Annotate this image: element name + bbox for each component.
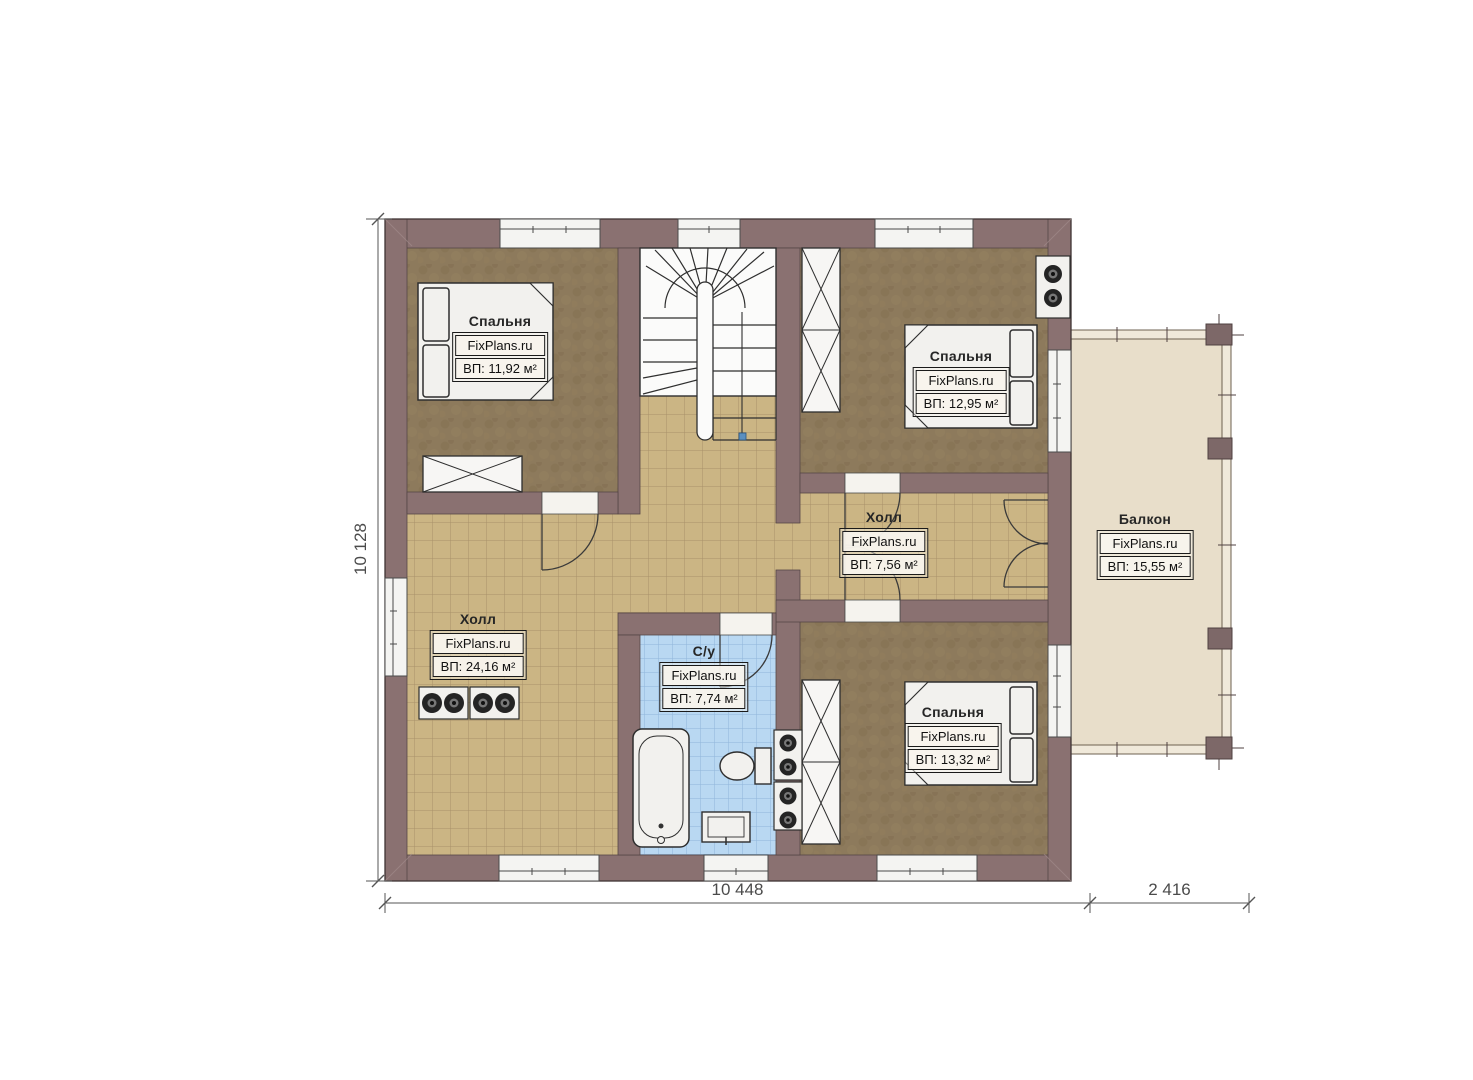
room-name: Спальня [469,313,532,329]
room-label-hall-large: Холл FixPlans.ru ВП: 24,16 м² [430,611,527,680]
pillow [423,288,449,341]
wall-bedroomTL-hall-a [407,492,542,514]
window-bottom-1 [499,855,599,881]
room-area: ВП: 24,16 м² [433,656,524,677]
wall-outer-left [385,219,407,881]
hall-large-floor [407,514,640,855]
room-name: Холл [460,611,496,627]
room-info-box: FixPlans.ru ВП: 12,95 м² [913,367,1010,417]
room-name: Спальня [922,704,985,720]
window-bottom-2 [877,855,977,881]
room-label-bedroom-top-right: Спальня FixPlans.ru ВП: 12,95 м² [913,348,1010,417]
brand-watermark: FixPlans.ru [908,726,999,747]
room-info-box: FixPlans.ru ВП: 11,92 м² [452,332,548,382]
pillow [1010,738,1033,782]
room-area: ВП: 13,32 м² [908,749,999,770]
room-name: Балкон [1119,511,1171,527]
passage-threshold [776,523,800,570]
room-area: ВП: 12,95 м² [916,393,1007,414]
wall-bedroomTR-hall-b [900,473,1048,493]
room-label-bedroom-bottom-right: Спальня FixPlans.ru ВП: 13,32 м² [905,704,1002,773]
window-top-stairs [678,219,740,248]
room-name: Спальня [930,348,993,364]
wall-bedroomTL-stairs [618,248,640,514]
wall-bedroomTR-hall-a [800,473,845,493]
wardrobe-bedroomBR [802,680,840,844]
brand-watermark: FixPlans.ru [916,370,1007,391]
floor-plan-page: Спальня FixPlans.ru ВП: 11,92 м² Спальня… [0,0,1473,1080]
brand-watermark: FixPlans.ru [455,335,545,356]
room-label-hall-small: Холл FixPlans.ru ВП: 7,56 м² [839,509,928,578]
wardrobe-bedroomTL [423,456,522,492]
brand-watermark: FixPlans.ru [433,633,524,654]
stair-divider [697,282,713,440]
wardrobe-bedroomTR [802,248,840,412]
wall-hall-bedroomBR-a [776,600,845,622]
pillow [423,345,449,397]
room-label-balcony: Балкон FixPlans.ru ВП: 15,55 м² [1097,511,1194,580]
vent-bedroomTR-corner [1036,256,1070,318]
pillow [1010,330,1033,377]
room-label-bathroom: С/у FixPlans.ru ВП: 7,74 м² [659,643,748,712]
room-info-box: FixPlans.ru ВП: 13,32 м² [905,723,1002,773]
wall-bedroomTL-hall-b [598,492,618,514]
room-info-box: FixPlans.ru ВП: 7,74 м² [659,662,748,712]
window-bottom-bath [704,855,768,881]
room-area: ВП: 11,92 м² [455,358,545,379]
dimension-height-total: 10 128 [351,504,371,594]
window-right-bedroomTR [1048,350,1071,452]
vent-bathroom-wall [774,730,802,830]
window-right-bedroomBR [1048,645,1071,737]
room-info-box: FixPlans.ru ВП: 7,56 м² [839,528,928,578]
brand-watermark: FixPlans.ru [1100,533,1191,554]
wall-hall-bedroomBR-b [900,600,1048,622]
floor-plan-canvas [0,0,1473,1080]
dimension-width-balcony: 2 416 [1090,880,1249,900]
room-area: ВП: 15,55 м² [1100,556,1191,577]
wall-bathroom-top-b [772,613,776,635]
pillow [1010,381,1033,425]
window-top-2 [875,219,973,248]
room-info-box: FixPlans.ru ВП: 15,55 м² [1097,530,1194,580]
dimension-width-main: 10 448 [385,880,1090,900]
brand-watermark: FixPlans.ru [662,665,745,686]
room-label-bedroom-top-left: Спальня FixPlans.ru ВП: 11,92 м² [452,313,548,382]
wall-bathroom-top-a [618,613,720,635]
balcony-railing-right [1222,330,1231,754]
room-info-box: FixPlans.ru ВП: 24,16 м² [430,630,527,680]
room-area: ВП: 7,56 м² [842,554,925,575]
vanity-sink [702,812,750,845]
brand-watermark: FixPlans.ru [842,531,925,552]
pillow [1010,687,1033,734]
wall-stairs-bedroomTR [776,248,800,523]
room-name: Холл [866,509,902,525]
room-name: С/у [693,643,716,659]
room-area: ВП: 7,74 м² [662,688,745,709]
bathtub [633,729,689,847]
stair-start-marker [739,433,746,440]
window-left-hall [385,578,407,676]
window-top-1 [500,219,600,248]
